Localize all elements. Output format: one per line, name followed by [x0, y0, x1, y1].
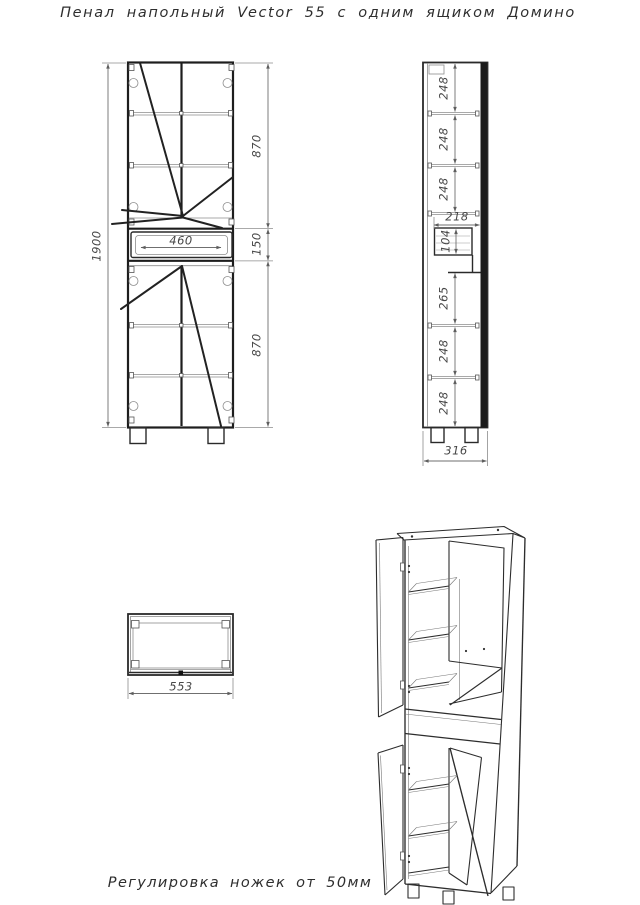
dim-overall-width: 553: [169, 681, 192, 693]
legs-adjustment-note: Регулировка ножек от 50мм: [108, 876, 372, 891]
dim-drawer-depth: 218: [445, 211, 468, 223]
dim-side-gap-2: 248: [438, 127, 450, 150]
dim-front-total-height: 1900: [91, 230, 103, 261]
dim-below-drawer-gap: 265: [438, 286, 450, 309]
dim-front-lower-height: 870: [251, 333, 263, 356]
dim-overall-depth: 316: [444, 445, 467, 457]
dim-front-drawer-height: 150: [251, 232, 263, 255]
dim-side-gap-3: 248: [438, 177, 450, 200]
dim-drawer-box-height: 104: [440, 229, 452, 252]
dim-side-gap-4: 248: [438, 339, 450, 362]
technical-drawing-page: Пенал напольный Vector 55 с одним ящиком…: [0, 0, 640, 905]
drawing-canvas: [0, 0, 640, 905]
side-view-drawing: [423, 63, 488, 467]
isometric-view-drawing: [376, 527, 525, 905]
dim-side-gap-5: 248: [438, 391, 450, 414]
dim-front-upper-height: 870: [251, 134, 263, 157]
dim-side-gap-1: 248: [438, 76, 450, 99]
front-view-drawing: [102, 63, 273, 444]
dim-drawer-inner-width: 460: [169, 235, 192, 247]
page-title: Пенал напольный Vector 55 с одним ящиком…: [60, 6, 576, 21]
